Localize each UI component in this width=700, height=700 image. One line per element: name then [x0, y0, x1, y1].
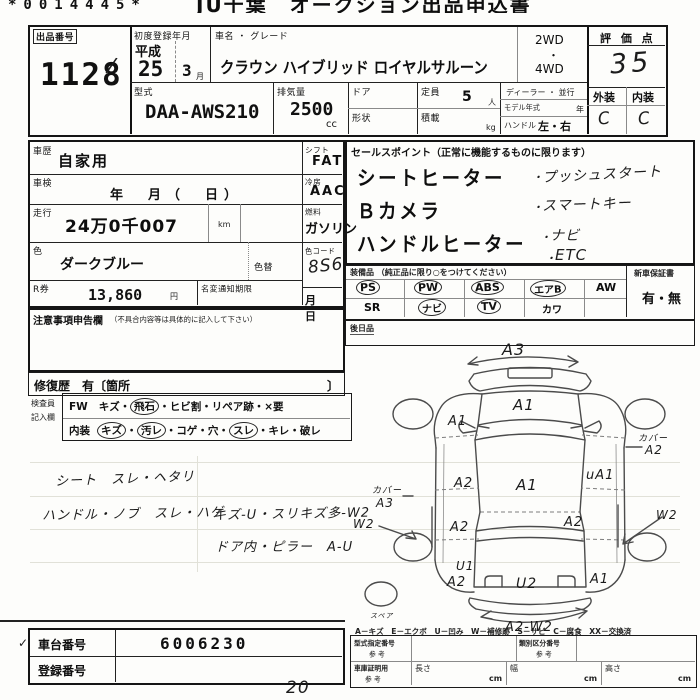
mileage-value: 24万0千007 [65, 212, 178, 237]
car-name: クラウン ハイブリッド ロイヤルサルーン [220, 54, 488, 78]
r-ticket-value: 13,860 [88, 286, 142, 304]
class-ref: 参 考 [536, 650, 552, 659]
line [626, 266, 627, 317]
line [517, 27, 518, 82]
note-handle: ハンドル・ノブ スレ・ハゲ [42, 501, 224, 523]
handle-value: 左・右 [538, 118, 571, 134]
damage-right-rear-door: A2 [563, 515, 583, 530]
color-change-label: 色替 [254, 260, 273, 273]
ac-value: AAC [310, 184, 346, 199]
shaken-value: 年 月（ 日） [110, 184, 243, 203]
score-label: 評 価 点 [600, 30, 656, 46]
rear-bumper-outline [469, 598, 591, 615]
warranty-label: 新車保証書 [634, 268, 674, 279]
car-diagram: A3 A1 A1 A2 A1 uA1 カバー A2 カバー A3 W2 A2 A… [350, 335, 700, 635]
line [302, 204, 342, 205]
reg-year: 25 [138, 57, 163, 81]
line [411, 636, 412, 661]
length-label: 長さ [415, 663, 431, 674]
shaken-label: 車検 [33, 176, 52, 189]
sales-points-box: セールスポイント（正常に機能するものに限ります） シートヒーター Ｂカメラ ハン… [345, 140, 695, 265]
damage-roof: A1 [515, 476, 538, 494]
damage-w2-right: W2 [656, 508, 678, 522]
spare-label: スペア [370, 612, 394, 620]
garage-label: 車庫証明用 [354, 664, 388, 673]
name-change-label: 名変通知期限 [201, 283, 252, 295]
line [576, 636, 577, 661]
line [130, 82, 587, 83]
model-code: DAA-AWS210 [145, 101, 259, 123]
warranty-value: 有・無 [642, 288, 681, 307]
reference-table: 型式指定番号 参 考 類別区分番号 参 考 車庫証明用 参 考 長さ cm 幅 … [350, 635, 697, 688]
sep: ・ [201, 401, 212, 413]
reg-month: 3 [182, 61, 192, 80]
line [500, 116, 587, 117]
damage-hood: A1 [512, 396, 535, 414]
damage-left-rear-door: A2 [449, 520, 469, 535]
line [115, 630, 116, 682]
damage-left-quarter: A2 [446, 575, 466, 590]
auction-sheet: *0014445* JU千葉 オークション出品申込書 出品番号 1128 ∕ 初… [0, 0, 700, 700]
exterior-grade: C [597, 108, 613, 130]
car-diagram-container: A3 A1 A1 A2 A1 uA1 カバー A2 カバー A3 W2 A2 A… [350, 335, 700, 635]
equip-sr: SR [364, 301, 380, 314]
chassis-table: 車台番号 6006230 登録番号 [28, 628, 345, 685]
shape-label: 形状 [352, 111, 371, 124]
int-item: 穴 [208, 425, 219, 437]
interior-label: 内装 [632, 89, 654, 105]
line [302, 174, 342, 175]
door-label: ドア [352, 85, 371, 98]
cover-left-code: A3 [375, 496, 394, 510]
fw-item: ×要 [264, 401, 283, 413]
line [130, 27, 132, 134]
line [516, 636, 517, 661]
equipment-header: 装備品 （純正品に限り○をつけてください） [350, 267, 512, 278]
line [506, 661, 507, 685]
interior-grade: C [637, 108, 653, 130]
capacity-unit: 人 [488, 97, 496, 108]
inspector-box: FW キズ・飛石・ヒビ割・リペア跡・×要 内装 キズ・汚レ・コゲ・穴・スレ・キレ… [62, 393, 352, 441]
damage-trunk: U2 [516, 576, 537, 592]
page-number: 20 [286, 678, 310, 698]
drive-2wd: 2WD [535, 33, 564, 47]
sep: ・ [254, 401, 265, 413]
model-code-label: 型式 [134, 85, 153, 98]
model-desig-ref: 参 考 [369, 650, 385, 659]
line [30, 656, 342, 657]
line [500, 99, 587, 100]
inspector-interior-row: 内装 キズ・汚レ・コゲ・穴・スレ・キレ・破レ [69, 422, 321, 439]
exterior-label: 外装 [593, 89, 615, 105]
registration-label: 登録番号 [38, 662, 86, 679]
color-code-label: 色コード [305, 245, 335, 255]
sep: ・ [120, 401, 131, 413]
inspector-label-2: 記入欄 [31, 412, 55, 423]
sales-point-written-4: ETC [555, 246, 587, 264]
equip-pw: PW [414, 280, 443, 296]
equip-airbag: エアB [530, 279, 566, 297]
caution-label: 注意事項申告欄 [33, 312, 103, 327]
yen-unit: 円 [170, 291, 178, 302]
line [302, 142, 303, 305]
line [587, 27, 589, 134]
front-left-wheel [393, 399, 433, 429]
color-code-value: 8S6 [307, 254, 344, 278]
line [197, 280, 198, 305]
vehicle-detail-table: 車歴 自家用 シフト FAT 車検 年 月（ 日） 冷房 AAC 走行 24万0… [28, 140, 345, 308]
right-mirror [584, 421, 601, 433]
shift-value: FAT [312, 154, 343, 169]
modelyear-label: モデル年式 [504, 103, 540, 113]
sales-point-written-2: スマートキー [542, 192, 632, 215]
later-items-label: 後日品 [350, 323, 374, 335]
lot-number-label: 出品番号 [33, 29, 77, 44]
dealer-label: ディーラー ・ 並行 [506, 87, 575, 98]
chassis-number: 6006230 [160, 634, 248, 653]
sales-point-printed-1: シートヒーター [357, 162, 505, 191]
note-door-pillar: ドア内・ピラー A-U [215, 536, 353, 555]
fuel-label: 燃料 [305, 206, 321, 217]
line [404, 279, 405, 317]
line [175, 41, 176, 82]
line [30, 174, 302, 175]
equip-tv: TV [477, 299, 502, 315]
int-item-circled: キズ [97, 421, 127, 439]
damage-right-front-door: uA1 [586, 468, 614, 483]
line [500, 82, 501, 134]
fw-item: リペア跡 [212, 401, 254, 413]
sales-point-printed-2: Ｂカメラ [357, 195, 442, 224]
sales-point-printed-3: ハンドルヒーター [357, 228, 526, 257]
interior-prefix: 内装 [69, 425, 90, 437]
sep: ・ [218, 425, 229, 437]
front-plate [508, 368, 552, 378]
handle-label: ハンドル [504, 120, 536, 131]
capacity-label: 定員 [421, 85, 440, 98]
length-unit: cm [489, 674, 502, 683]
fw-prefix: FW [69, 401, 88, 413]
cover-left-label: カバー [372, 485, 402, 496]
serial-number: *0014445* [8, 0, 147, 13]
line [30, 242, 302, 243]
spare-tire [365, 582, 397, 606]
sep: ・ [126, 425, 137, 437]
left-side-outline [435, 448, 436, 560]
equip-abs: ABS [471, 279, 504, 295]
fw-item-circled: 飛石 [130, 397, 160, 415]
repair-history-close: 〕 [327, 377, 339, 394]
r-ticket-label: R券 [33, 282, 49, 295]
front-bumper-outline [469, 368, 591, 392]
height-unit: cm [678, 674, 691, 683]
sales-points-header: セールスポイント（正常に機能するものに限ります） [351, 144, 591, 159]
line [302, 287, 342, 288]
damage-left-front-door: A2 [453, 476, 473, 491]
damage-right-quarter: A1 [589, 572, 609, 587]
reg-month-unit: 月 [196, 71, 204, 82]
line [584, 279, 585, 317]
displacement-unit: cc [326, 119, 337, 130]
line [601, 661, 602, 685]
equip-ps: PS [356, 280, 380, 296]
sheet-title-clip: JU千葉 オークション出品申込書 [196, 0, 596, 13]
score-value: 35 [609, 47, 653, 81]
model-desig-label: 型式指定番号 [354, 639, 395, 648]
sep: ・ [258, 425, 269, 437]
sheet-title: JU千葉 オークション出品申込書 [196, 0, 596, 13]
line [63, 418, 350, 419]
drive-dot: ・ [548, 47, 559, 63]
equip-aw: AW [596, 281, 616, 294]
color-value: ダークブルー [60, 254, 144, 274]
line [351, 661, 695, 662]
int-item: コゲ [176, 425, 197, 437]
line [210, 27, 211, 82]
int-item: 破レ [300, 425, 321, 437]
line [30, 204, 302, 205]
sales-point-written-3: ナビ [550, 225, 580, 245]
capacity-value: 5 [462, 89, 472, 105]
line [302, 242, 342, 243]
fw-item: ヒビ割 [170, 401, 202, 413]
sales-point-written-1: プッシュスタート [542, 161, 663, 187]
line [0, 620, 345, 622]
damage-front-bumper: A3 [501, 340, 525, 359]
repair-history-text: 修復歴 有〔箇所 [34, 377, 130, 394]
load-unit: kg [486, 123, 496, 132]
int-item-circled: スレ [229, 421, 259, 439]
windshield-outline [475, 425, 585, 440]
line [348, 108, 500, 109]
sep: ・ [197, 425, 208, 437]
chassis-label: 車台番号 [38, 636, 86, 653]
width-label: 幅 [510, 663, 518, 674]
line [240, 204, 241, 242]
equip-kawa: カワ [542, 301, 562, 316]
sep: ・ [166, 425, 177, 437]
damage-left-fender: A1 [447, 414, 467, 429]
damage-w2-left: W2 [353, 517, 375, 531]
modelyear-unit: 年 [576, 104, 584, 115]
history-value: 自家用 [58, 150, 109, 171]
height-label: 高さ [605, 663, 621, 674]
equipment-box: 装備品 （純正品に限り○をつけてください） PS PW ABS エアB AW S… [345, 265, 695, 320]
width-unit: cm [584, 674, 597, 683]
rear-left-wheel [394, 533, 432, 561]
mileage-unit: km [218, 220, 230, 229]
sill-lines [443, 444, 617, 563]
history-label: 車歴 [33, 144, 52, 157]
int-item-circled: 汚レ [137, 421, 167, 439]
sep: ・ [289, 425, 300, 437]
mileage-label: 走行 [33, 206, 52, 219]
caution-sublabel: （不具合内容等は具体的に記入して下さい） [110, 314, 257, 324]
line [30, 280, 302, 281]
cover-right-code: A2 [644, 443, 663, 457]
note-scratches: キズ-U・スリキズ多-W2 [213, 502, 370, 524]
line [626, 87, 627, 134]
load-label: 積載 [421, 111, 440, 124]
color-label: 色 [33, 244, 43, 257]
car-name-label: 車名 ・ グレード [215, 29, 288, 42]
class-label: 類別区分番号 [519, 639, 560, 648]
displacement: 2500 [290, 99, 333, 120]
line [273, 82, 274, 134]
inspector-label-1: 検査員 [31, 398, 55, 409]
line [587, 45, 665, 46]
fw-item: キズ [99, 401, 120, 413]
sep: ・ [159, 401, 170, 413]
displacement-label: 排気量 [277, 85, 306, 98]
damage-left-quarter-u: U1 [456, 559, 474, 573]
line [248, 242, 249, 280]
inspector-fw-row: FW キズ・飛石・ヒビ割・リペア跡・×要 [69, 398, 284, 415]
garage-ref: 参 考 [365, 675, 381, 684]
vehicle-header-table: 出品番号 1128 ∕ 初度登録年月 平成 25 3 月 車名 ・ グレード ク… [28, 25, 668, 137]
caution-box: 注意事項申告欄 （不具合内容等は具体的に記入して下さい） [28, 308, 345, 372]
line [524, 279, 525, 317]
line [464, 279, 465, 317]
drive-4wd: 4WD [535, 62, 564, 76]
line [208, 204, 209, 242]
front-right-wheel [625, 399, 665, 429]
note-seat: シート スレ・ヘタリ [55, 466, 196, 490]
int-item: キレ [268, 425, 289, 437]
line [411, 661, 412, 685]
equip-navi: ナビ [418, 299, 447, 317]
